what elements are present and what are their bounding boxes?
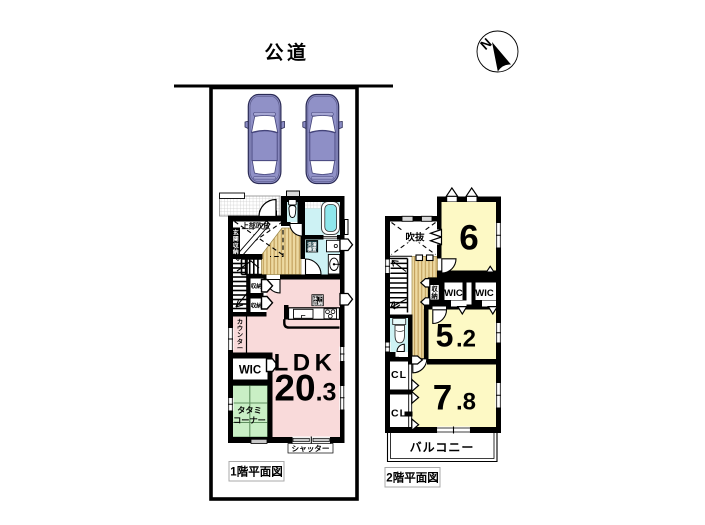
svg-text:WIC: WIC [444, 288, 463, 299]
svg-text:コーナー: コーナー [233, 416, 266, 425]
svg-text:6: 6 [459, 219, 478, 258]
svg-text:.2: .2 [456, 326, 476, 353]
svg-text:1階平面図: 1階平面図 [230, 465, 282, 479]
svg-text:カウンター: カウンター [237, 319, 243, 352]
svg-text:収納: 収納 [251, 302, 263, 310]
svg-text:玄関収納: 玄関収納 [233, 229, 239, 256]
svg-text:シャッター: シャッター [292, 443, 330, 453]
svg-text:収納: 収納 [313, 300, 323, 307]
svg-text:バルコニー: バルコニー [410, 441, 475, 455]
svg-text:20: 20 [274, 368, 315, 409]
svg-text:タタミ: タタミ [237, 405, 262, 415]
svg-text:WIC: WIC [239, 365, 261, 377]
svg-text:機置: 機置 [306, 246, 317, 253]
svg-text:収納: 収納 [431, 284, 438, 300]
svg-text:.3: .3 [316, 379, 337, 407]
svg-text:WIC: WIC [475, 288, 494, 299]
svg-text:収納: 収納 [251, 282, 263, 290]
svg-text:.8: .8 [456, 389, 476, 416]
svg-text:上部吹放: 上部吹放 [242, 222, 272, 231]
svg-text:公道: 公道 [264, 41, 309, 64]
svg-text:2階平面図: 2階平面図 [386, 471, 438, 485]
svg-text:CL: CL [391, 408, 407, 420]
svg-text:7: 7 [433, 379, 452, 418]
svg-text:床下: 床下 [313, 295, 323, 302]
svg-text:5: 5 [436, 318, 454, 354]
svg-text:CL: CL [391, 369, 407, 381]
svg-text:吹抜: 吹抜 [405, 232, 425, 244]
